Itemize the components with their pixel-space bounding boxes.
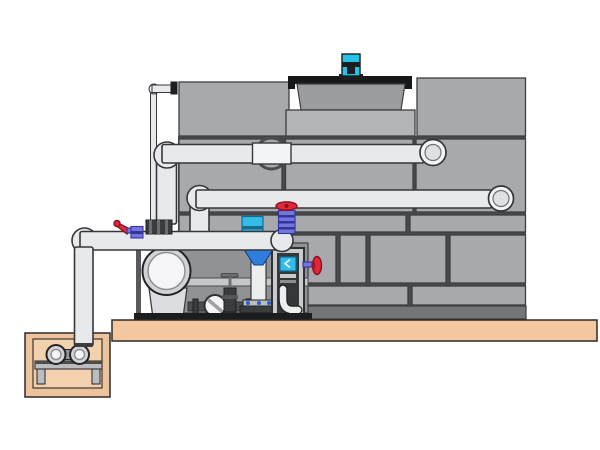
cabinet-slot [280, 280, 296, 283]
circulation-pump [143, 247, 191, 320]
tower-panel [340, 235, 366, 283]
control-cabinet [272, 248, 304, 318]
fan-motor-band [342, 62, 360, 67]
sump-motor-face [51, 350, 61, 360]
cabinet-slot [280, 274, 296, 278]
stand-leg [37, 369, 45, 384]
tower-panel [370, 235, 446, 283]
dosing-box-band [243, 226, 263, 230]
skid-post [136, 246, 141, 319]
stand-beam-edge [35, 361, 102, 364]
handwheel-hub [312, 262, 316, 270]
bolt [246, 301, 250, 305]
low-pipe-flange [193, 299, 198, 314]
end-gate-valve [276, 202, 297, 234]
valve-band [279, 227, 296, 230]
fan-deck-rim-left [288, 76, 295, 89]
concrete-platform [112, 320, 597, 341]
tower-panel [412, 286, 526, 305]
valve-body [224, 288, 236, 312]
stand-leg [92, 369, 100, 384]
fan-assembly [286, 54, 415, 136]
valve-band [131, 231, 143, 234]
return-elbow-dome [425, 145, 441, 161]
handwheel-hub [285, 204, 289, 208]
makeup-pipe-horizontal [152, 85, 172, 93]
sump-volute-face [75, 350, 85, 360]
fan-motor-core [347, 67, 355, 74]
handwheel-stem [303, 262, 312, 267]
bolt [267, 301, 271, 305]
pipe-coupling-sleeve [253, 143, 292, 164]
suction-pipe-run [80, 232, 278, 251]
suction-drop-pipe [75, 247, 94, 346]
tower-panel [450, 235, 526, 283]
injector-column [251, 261, 266, 302]
fan-front-wall [286, 110, 415, 136]
spray-pipe-run [196, 190, 492, 208]
pump-suction-opening [148, 253, 185, 290]
bolt [257, 301, 261, 305]
cabinet-display [280, 257, 296, 271]
tower-panel [417, 78, 526, 136]
skid-base-rail [134, 313, 312, 320]
fan-deck-rim-right [405, 76, 412, 89]
coupling-rib [165, 220, 168, 234]
tower-panel [179, 82, 289, 136]
tower-panel [410, 215, 526, 232]
sump-pit [25, 247, 110, 397]
cooling-tower-diagram [0, 0, 600, 450]
diagram-canvas [0, 0, 600, 450]
valve-stem [229, 277, 232, 288]
lever-knob [114, 221, 120, 227]
return-pipe-run [162, 145, 424, 164]
fan-shroud [297, 84, 405, 110]
valve-band [279, 215, 296, 218]
spray-elbow-dome [493, 191, 509, 207]
coupling-rib [157, 220, 160, 234]
coupling-rib [149, 220, 152, 234]
valve-band [279, 221, 296, 224]
valve-flange [222, 295, 238, 299]
tee-handle [221, 274, 238, 278]
drop-pipe-joint [75, 343, 93, 347]
makeup-pipe-flange [171, 82, 178, 95]
